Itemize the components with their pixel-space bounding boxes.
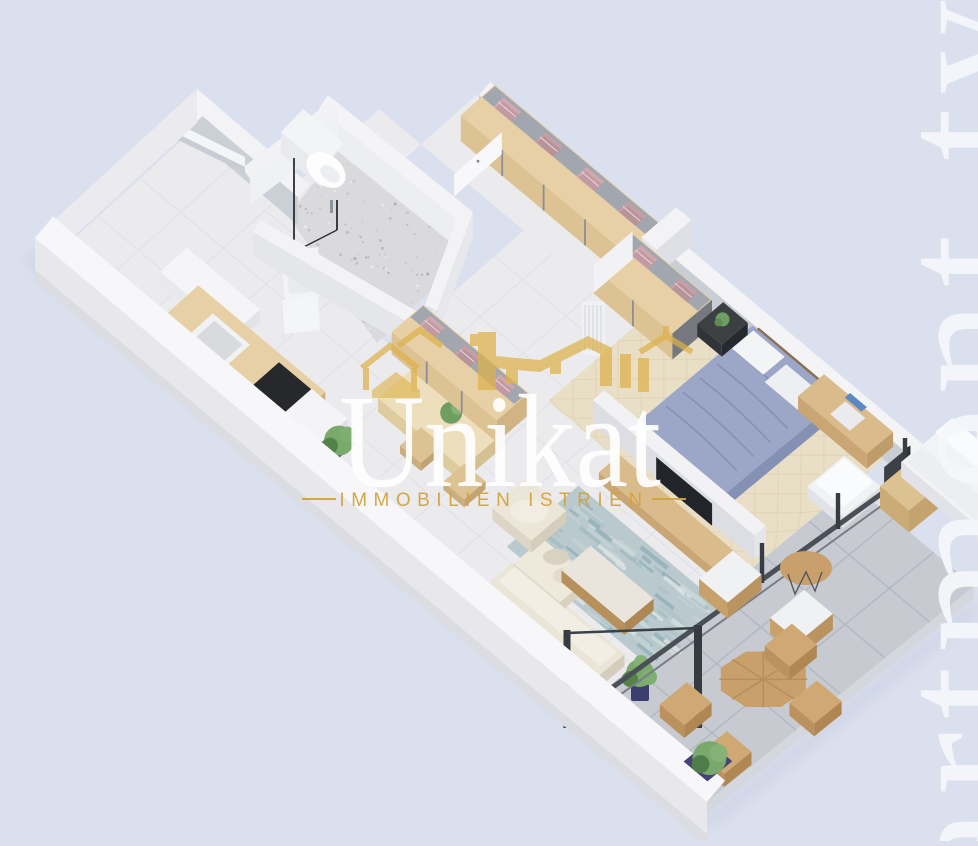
svg-text:apartment type: apartment type (860, 0, 978, 841)
svg-text:IMMOBILIEN ISTRIEN: IMMOBILIEN ISTRIEN (339, 490, 648, 511)
